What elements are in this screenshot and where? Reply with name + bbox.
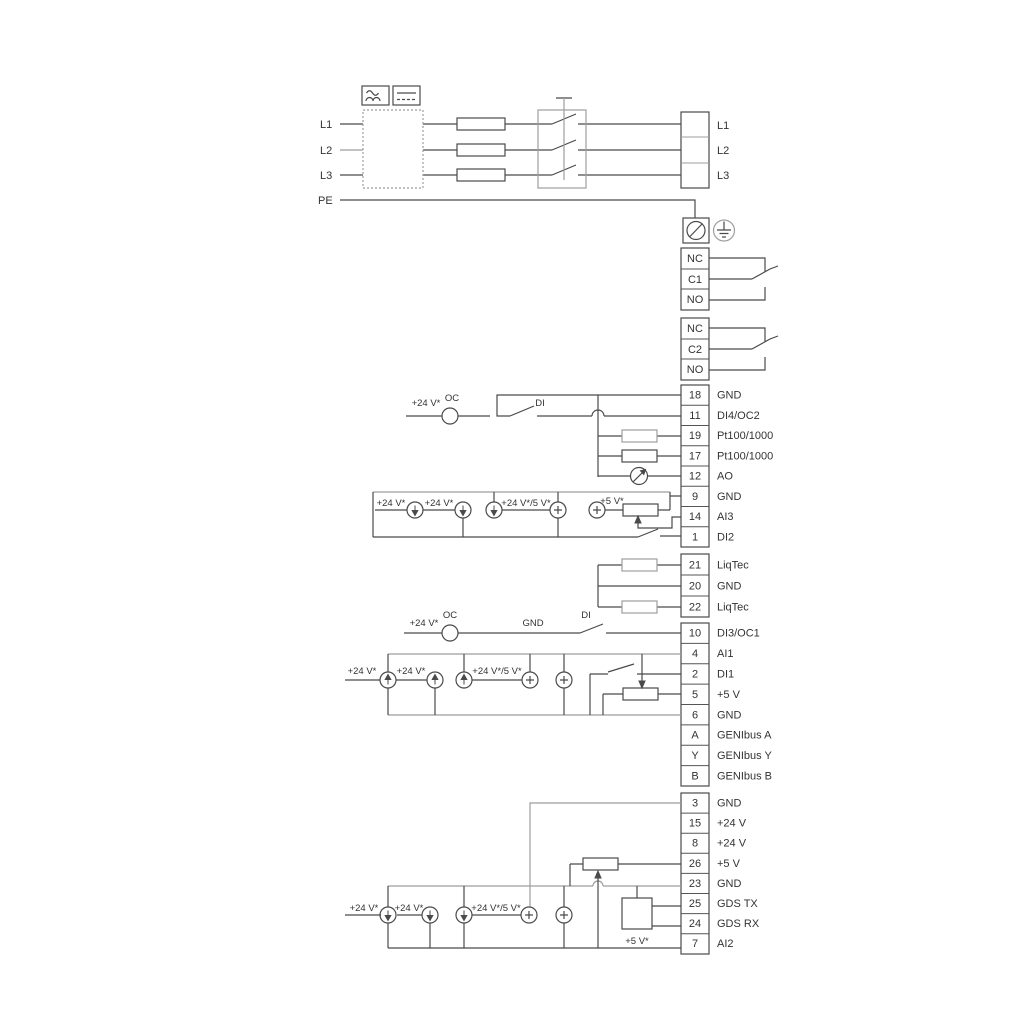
output-terminals: L1 L2 L3 <box>681 112 729 188</box>
potentiometer-icon <box>623 504 658 516</box>
wire <box>388 654 681 715</box>
input-phase-label: L1 <box>320 119 332 131</box>
wiper-arrowhead <box>639 681 645 688</box>
wiper-arrowhead <box>635 516 641 523</box>
terminal-number: 5 <box>692 689 698 701</box>
dc-symbol-icon <box>393 86 420 105</box>
wire-label: +24 V* <box>412 398 441 409</box>
terminal-number: 20 <box>689 581 701 593</box>
plus-glyph <box>560 911 568 919</box>
earth-ground-glyph <box>717 222 731 238</box>
power-input-section: L1 L2 L3 PE <box>318 86 695 218</box>
terminal-number: 4 <box>692 648 698 660</box>
output-phase-label: L1 <box>717 120 729 132</box>
open-collector-icon <box>442 625 458 641</box>
current-source-icon <box>455 502 471 518</box>
input-phase-label: L2 <box>320 145 332 157</box>
wire-label: OC <box>445 393 459 404</box>
plus-glyph <box>554 506 562 514</box>
relay-terminal: C2 <box>688 344 702 356</box>
fuse-icon <box>457 169 505 181</box>
terminal-label: DI1 <box>717 669 734 681</box>
terminal-number: 15 <box>689 818 701 830</box>
wire-label: +24 V*/5 V* <box>472 666 522 677</box>
current-source-icon <box>427 672 443 688</box>
terminal-label: +24 V <box>717 838 747 850</box>
arrow-down-glyph <box>412 506 418 516</box>
wire-label: DI <box>581 610 591 621</box>
plus-glyph <box>560 676 568 684</box>
terminal-number: 25 <box>689 898 701 910</box>
current-source-icon <box>380 672 396 688</box>
terminal-number: 22 <box>689 602 701 614</box>
wire <box>345 654 681 715</box>
terminal-label: LiqTec <box>717 602 749 614</box>
terminal-group-b: 21 20 22 LiqTec GND LiqTec <box>598 554 749 617</box>
terminal-number: 24 <box>689 918 701 930</box>
terminal-group-d: 3 15 8 26 23 25 24 7 GND +24 V +24 V +5 … <box>681 793 760 954</box>
terminal-number: A <box>691 730 699 742</box>
terminal-label: AI2 <box>717 938 734 950</box>
terminal-number: 17 <box>689 450 701 462</box>
resistor-icon <box>622 430 657 442</box>
wiring-diagram: L1 L2 L3 PE L1 L2 L3 NC C1 NO NC C2 NO <box>0 0 1024 1024</box>
terminal-number: 10 <box>689 628 701 640</box>
terminal-number: 8 <box>692 838 698 850</box>
open-collector-icon <box>442 408 458 424</box>
terminal-label: DI4/OC2 <box>717 410 760 422</box>
wire-label: +24 V*/5 V* <box>471 903 521 914</box>
fuse-icon <box>457 118 505 130</box>
resistor-icon <box>622 559 657 571</box>
pe-ground <box>683 218 735 243</box>
terminal-number: 23 <box>689 878 701 890</box>
terminal-label: GND <box>717 878 742 890</box>
current-source-icon <box>407 502 423 518</box>
fuse-icon <box>457 144 505 156</box>
terminal-label: GDS RX <box>717 918 760 930</box>
relay-1: NC C1 NO <box>681 248 778 310</box>
wire-label: +5 V* <box>600 496 624 507</box>
terminal-label: GENIbus B <box>717 771 772 783</box>
current-source-icon <box>380 907 396 923</box>
terminal-group-a: 18 11 19 17 12 9 14 1 GND DI4/OC2 Pt100/… <box>681 385 773 547</box>
io-wiring-row-3: +24 V* +24 V* +24 V*/5 V* +5 V* <box>345 803 681 948</box>
potentiometer-icon <box>623 688 658 700</box>
terminal-number: 1 <box>692 531 698 543</box>
arrow-up-glyph <box>385 675 391 685</box>
wire <box>340 98 564 180</box>
plus-glyph <box>593 506 601 514</box>
terminal-label: GENIbus Y <box>717 750 772 762</box>
terminal-number: B <box>691 771 698 783</box>
wire-label: +24 V* <box>410 618 439 629</box>
terminal-label: Pt100/1000 <box>717 450 773 462</box>
potentiometer-icon <box>583 858 618 870</box>
output-phase-label: L2 <box>717 145 729 157</box>
terminal-number: 7 <box>692 938 698 950</box>
resistor-icon <box>622 601 657 613</box>
io-wiring-row-2: +24 V* +24 V* +24 V*/5 V* <box>345 654 681 715</box>
wiring-diagram-page: L1 L2 L3 PE L1 L2 L3 NC C1 NO NC C2 NO <box>0 0 1024 1024</box>
terminal-number: 2 <box>692 669 698 681</box>
resistor-icon <box>622 450 657 462</box>
terminal-label: GND <box>717 390 742 402</box>
terminal-number: 6 <box>692 709 698 721</box>
terminal-label: DI3/OC1 <box>717 628 760 640</box>
wire-label: +24 V* <box>395 903 424 914</box>
arrow-down-glyph <box>461 911 467 921</box>
wire-label: +24 V* <box>348 666 377 677</box>
plus-glyph <box>526 676 534 684</box>
terminal-label: +5 V <box>717 858 741 870</box>
arrow-down-glyph <box>491 506 497 516</box>
voltage-source-plus-icon <box>556 907 572 923</box>
terminal-block <box>681 112 709 188</box>
terminal-number: 12 <box>689 471 701 483</box>
relay-terminal: NO <box>687 294 704 306</box>
terminal-label: AI1 <box>717 648 734 660</box>
terminal-number: 21 <box>689 560 701 572</box>
current-source-icon <box>456 672 472 688</box>
terminal-number: 14 <box>689 511 701 523</box>
wire <box>340 98 695 218</box>
relay-2: NC C2 NO <box>681 318 778 380</box>
terminal-number: 9 <box>692 491 698 503</box>
current-source-icon <box>456 907 472 923</box>
wire-label: +24 V*/5 V* <box>501 498 551 509</box>
main-switch-enclosure <box>538 110 586 188</box>
voltage-source-plus-icon <box>522 672 538 688</box>
emc-filter-box <box>363 110 423 188</box>
terminal-number: 11 <box>689 410 700 422</box>
current-source-icon <box>486 502 502 518</box>
gds-sensor-box-icon <box>622 898 652 929</box>
terminal-label: GDS TX <box>717 898 758 910</box>
wire-label: +24 V* <box>425 498 454 509</box>
relay-contact-icon <box>709 328 778 370</box>
terminal-number: Y <box>691 750 699 762</box>
terminal-label: +5 V <box>717 689 741 701</box>
wire-label: +24 V* <box>377 498 406 509</box>
io-wiring-row-1: +24 V* +24 V* +24 V*/5 V* +5 V* <box>373 492 681 537</box>
terminal-label: LiqTec <box>717 560 749 572</box>
terminal-label: GND <box>717 491 742 503</box>
terminal-label: GENIbus A <box>717 730 772 742</box>
wire-label: DI <box>535 398 545 409</box>
input-phase-label: L3 <box>320 170 332 182</box>
current-source-icon <box>422 907 438 923</box>
voltage-source-plus-icon <box>556 672 572 688</box>
terminal-label: DI2 <box>717 531 734 543</box>
voltage-source-plus-icon <box>521 907 537 923</box>
wire-label: +24 V* <box>397 666 426 677</box>
terminal-number: 26 <box>689 858 701 870</box>
terminal-label: +24 V <box>717 818 747 830</box>
wire-label: +24 V* <box>350 903 379 914</box>
arrow-up-glyph <box>432 675 438 685</box>
arrow-down-glyph <box>460 506 466 516</box>
relay-terminal: NC <box>687 323 703 335</box>
input-pe-label: PE <box>318 195 333 207</box>
relay-terminal: NC <box>687 253 703 265</box>
terminal-label: AO <box>717 471 733 483</box>
terminal-label: GND <box>717 581 742 593</box>
arrow-down-glyph <box>427 911 433 921</box>
terminal-number: 18 <box>689 390 701 402</box>
wire-label: GND <box>522 618 543 629</box>
io-wiring-di4: +24 V* OC DI <box>406 393 681 485</box>
plus-glyph <box>525 911 533 919</box>
terminal-label: Pt100/1000 <box>717 430 773 442</box>
arrow-down-glyph <box>385 911 391 921</box>
output-phase-label: L3 <box>717 170 729 182</box>
relay-terminal: NO <box>687 364 704 376</box>
terminal-group-c: 10 4 2 5 6 A Y B DI3/OC1 AI1 DI1 +5 V GN… <box>681 623 772 786</box>
terminal-label: GND <box>717 798 742 810</box>
terminal-number: 19 <box>689 430 701 442</box>
wire-label: +5 V* <box>625 936 649 947</box>
arrow-up-glyph <box>461 675 467 685</box>
wire-label: OC <box>443 610 457 621</box>
voltage-source-plus-icon <box>550 502 566 518</box>
terminal-label: GND <box>717 709 742 721</box>
terminal-number: 3 <box>692 798 698 810</box>
relay-contact-icon <box>709 258 778 300</box>
io-wiring-di3: +24 V* OC GND DI <box>404 610 681 641</box>
wiper-arrowhead <box>595 871 601 878</box>
relay-terminal: C1 <box>688 274 702 286</box>
terminal-label: AI3 <box>717 511 734 523</box>
